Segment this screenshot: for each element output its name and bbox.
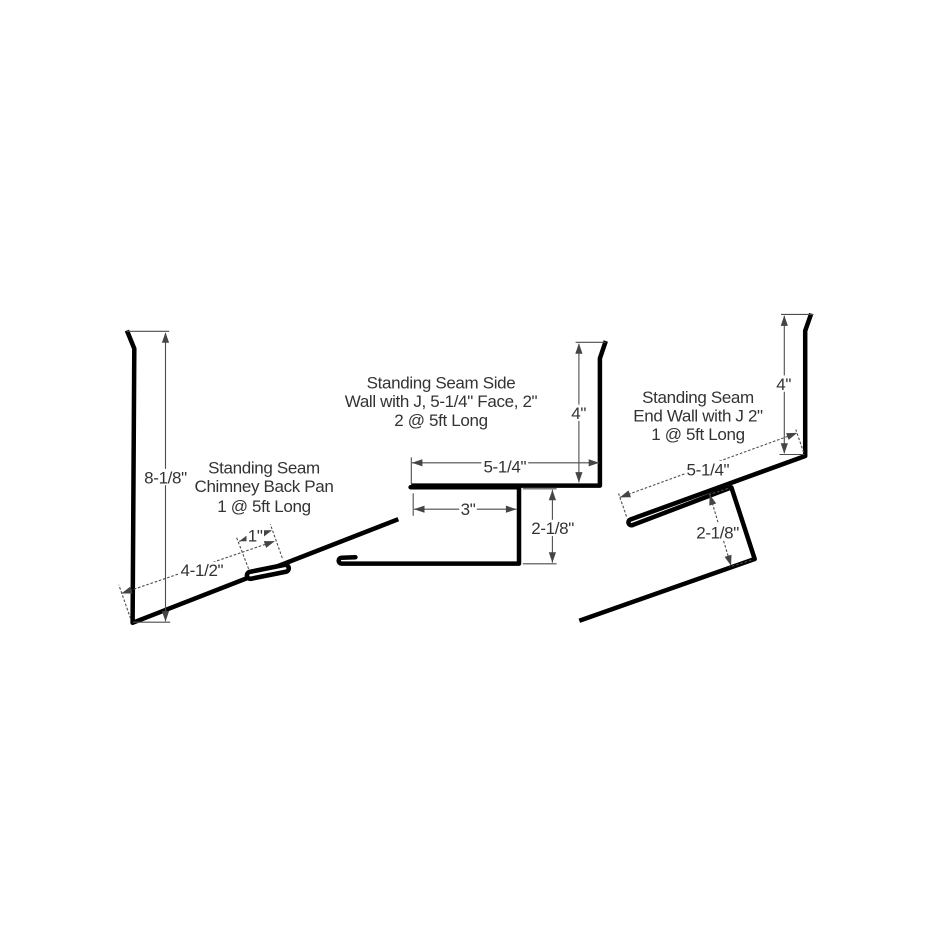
svg-text:Standing Seam: Standing Seam bbox=[208, 458, 320, 477]
svg-text:3": 3" bbox=[461, 500, 476, 519]
svg-text:5-1/4": 5-1/4" bbox=[483, 458, 526, 477]
svg-text:4": 4" bbox=[571, 404, 586, 423]
svg-text:Standing Seam: Standing Seam bbox=[642, 388, 754, 407]
svg-text:2 @ 5ft Long: 2 @ 5ft Long bbox=[394, 411, 487, 430]
svg-text:5-1/4": 5-1/4" bbox=[687, 460, 730, 479]
svg-text:4": 4" bbox=[776, 375, 791, 394]
svg-text:2-1/8": 2-1/8" bbox=[531, 519, 574, 538]
svg-text:2-1/8": 2-1/8" bbox=[696, 524, 739, 543]
svg-text:1 @ 5ft Long: 1 @ 5ft Long bbox=[217, 497, 310, 516]
svg-text:Wall with J, 5-1/4" Face, 2": Wall with J, 5-1/4" Face, 2" bbox=[345, 392, 538, 411]
svg-text:8-1/8": 8-1/8" bbox=[144, 468, 187, 487]
svg-text:1 @ 5ft Long: 1 @ 5ft Long bbox=[651, 425, 744, 444]
svg-text:4-1/2": 4-1/2" bbox=[181, 561, 224, 580]
svg-text:Chimney Back Pan: Chimney Back Pan bbox=[195, 477, 334, 496]
svg-text:Standing Seam Side: Standing Seam Side bbox=[367, 373, 516, 392]
svg-text:1": 1" bbox=[248, 526, 263, 545]
svg-text:End Wall with J 2": End Wall with J 2" bbox=[633, 407, 763, 426]
